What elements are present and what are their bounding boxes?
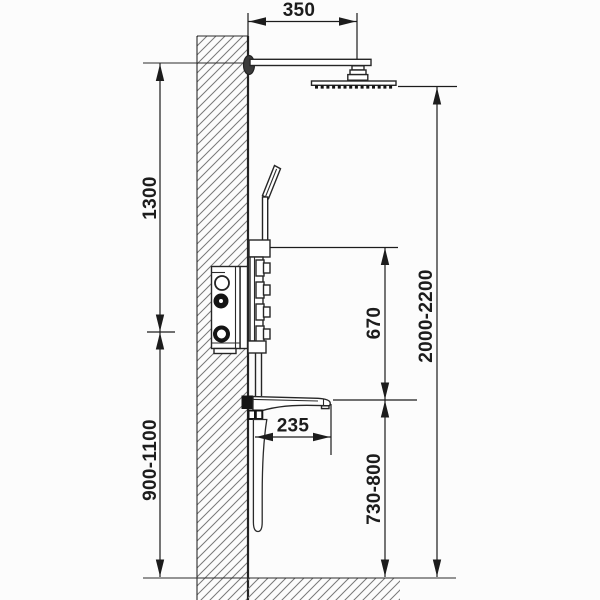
dim-670: 670: [270, 248, 417, 401]
dim-670-label: 670: [364, 307, 385, 340]
hose-coupling-right: [256, 411, 262, 420]
floor: [143, 578, 456, 600]
dim-1300: 1300: [140, 64, 175, 333]
dim-2000-2200-arrow-bottom: [433, 560, 441, 577]
mixer-port-bottom: [215, 328, 228, 341]
mixer-body-foot: [214, 349, 236, 354]
arm-bar: [250, 59, 371, 65]
dim-900-1100-arrow-top: [156, 333, 164, 350]
mixer-port-top: [215, 276, 229, 290]
mixer-knob-3-cap: [264, 307, 271, 317]
dim-350: 350: [248, 0, 357, 59]
dim-670-arrow-top: [381, 248, 389, 265]
mixer-knob-2: [256, 282, 264, 298]
dim-900-1100: 900-1100: [140, 332, 164, 577]
dim-730-800-label: 730-800: [364, 453, 385, 525]
mixer-port-middle-center: [219, 299, 223, 303]
mixer-knob-4-cap: [264, 329, 271, 339]
mixer-knob-2-cap: [264, 285, 271, 295]
dim-670-arrow-bottom: [381, 383, 389, 400]
mixer-mount-plate: [240, 267, 248, 349]
dim-235-arrow-right: [313, 433, 330, 441]
dim-350-label: 350: [283, 0, 316, 21]
dim-2000-2200-label: 2000-2200: [416, 269, 437, 363]
hand-shower-holder: [249, 240, 270, 257]
mixer-knob-1-cap: [264, 263, 271, 273]
head-connector-3: [348, 75, 368, 81]
dim-2000-2200: 2000-2200: [398, 87, 457, 578]
rain-shower-head: [312, 81, 397, 87]
dim-1300-label: 1300: [140, 176, 161, 219]
hand-shower-tube: [263, 197, 268, 241]
hand-shower: [249, 166, 281, 258]
shower-arm: [143, 56, 371, 81]
diagram-svg: 350 1300 900-1100 670 730-800 2000-2200: [0, 0, 600, 600]
hose-coupling-left: [249, 411, 256, 420]
head-plate: [312, 81, 397, 85]
dim-2000-2200-arrow-top: [433, 88, 441, 105]
mixer-knob-1: [256, 260, 264, 276]
mixer-knob-3: [256, 304, 264, 320]
spout-wall-block: [242, 396, 254, 410]
dim-1300-arrow-top: [156, 64, 164, 81]
spout-tip-lip: [322, 406, 330, 409]
dim-350-arrow-left: [249, 17, 266, 26]
spout-body: [253, 397, 330, 414]
dim-350-arrow-right: [339, 17, 356, 26]
dim-235: 235: [255, 404, 331, 455]
dim-730-800-arrow-top: [381, 401, 389, 418]
dim-900-1100-label: 900-1100: [140, 419, 161, 501]
mixer-knob-4: [256, 326, 264, 342]
installation-diagram: 350 1300 900-1100 670 730-800 2000-2200: [0, 0, 600, 600]
dim-730-800: 730-800: [364, 401, 389, 578]
dim-730-800-arrow-bottom: [381, 560, 389, 577]
dim-900-1100-arrow-bottom: [156, 560, 164, 577]
floor-hatch: [248, 579, 400, 600]
mixer-lower-block: [248, 341, 266, 353]
dim-1300-arrow-bottom: [156, 315, 164, 332]
dim-235-label: 235: [277, 416, 310, 437]
